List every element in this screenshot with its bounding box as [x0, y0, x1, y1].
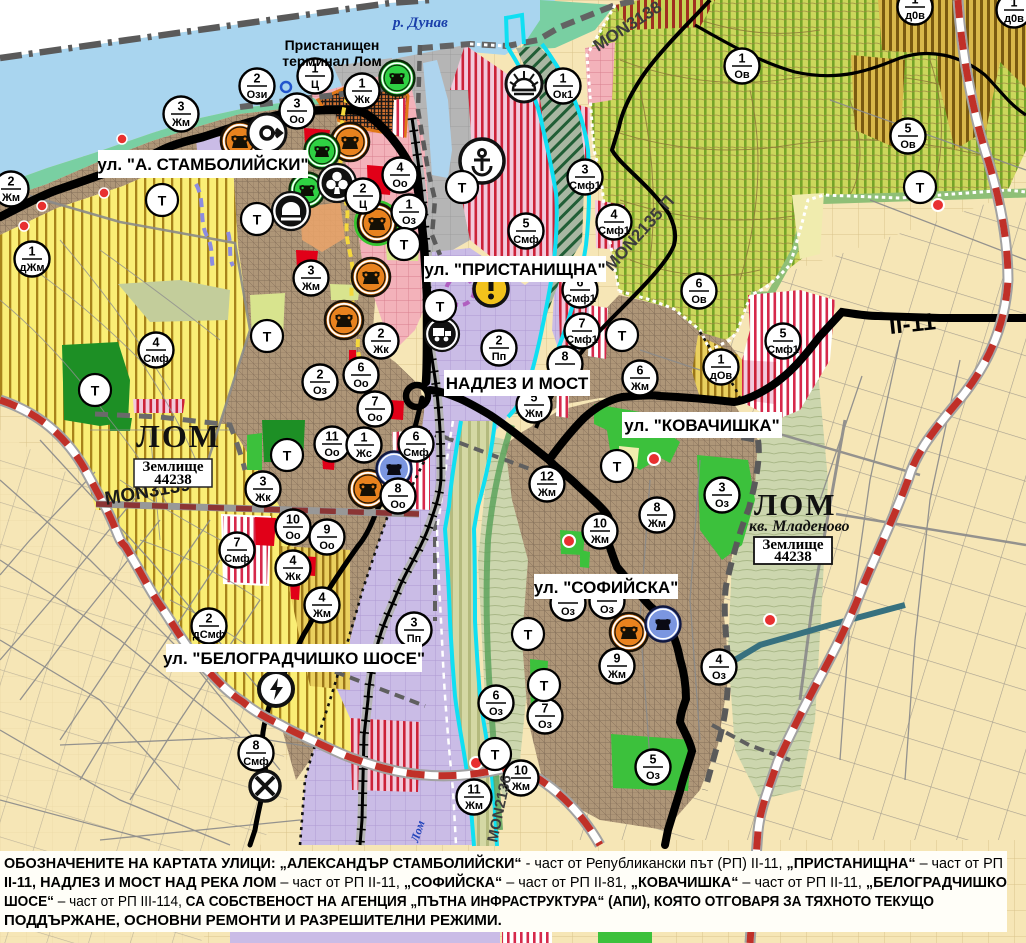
svg-text:8: 8: [395, 482, 402, 496]
svg-text:1: 1: [1011, 0, 1018, 10]
svg-text:Оз: Оз: [646, 770, 661, 782]
svg-text:1: 1: [912, 0, 919, 7]
svg-text:Оз: Оз: [715, 498, 730, 510]
svg-text:9: 9: [324, 523, 331, 537]
svg-text:ОБОЗНАЧЕНИТЕ НА КАРТАТА УЛИЦИ:: ОБОЗНАЧЕНИТЕ НА КАРТАТА УЛИЦИ: „АЛЕКСАНД…: [4, 854, 1003, 872]
svg-text:8: 8: [562, 350, 569, 364]
svg-text:2: 2: [254, 72, 261, 86]
svg-text:7: 7: [234, 536, 241, 550]
svg-text:8: 8: [654, 501, 661, 515]
svg-text:Смф1: Смф1: [566, 334, 598, 346]
svg-text:кв. Младеново: кв. Младеново: [749, 518, 850, 535]
svg-text:4: 4: [611, 208, 618, 222]
svg-text:1: 1: [560, 72, 567, 86]
svg-text:д0в: д0в: [905, 10, 925, 22]
svg-text:ЛОМ: ЛОМ: [136, 418, 221, 454]
svg-text:Оо: Оо: [319, 540, 335, 552]
svg-text:ул. "СОФИЙСКА": ул. "СОФИЙСКА": [534, 578, 679, 597]
svg-text:3: 3: [294, 97, 301, 111]
svg-text:д0в: д0в: [1004, 13, 1024, 25]
svg-text:Ок1: Ок1: [553, 89, 573, 101]
svg-text:Пп: Пп: [407, 633, 422, 645]
svg-text:8: 8: [253, 739, 260, 753]
svg-text:Ц: Ц: [359, 199, 367, 211]
svg-text:10: 10: [286, 513, 300, 527]
svg-text:Пристанищен: Пристанищен: [285, 37, 380, 53]
svg-text:1: 1: [406, 198, 413, 212]
svg-text:Жм: Жм: [630, 381, 649, 393]
svg-text:10: 10: [514, 764, 528, 778]
svg-text:Смф1: Смф1: [767, 344, 799, 356]
svg-text:Ц: Ц: [311, 79, 319, 91]
svg-text:Жм: Жм: [171, 117, 190, 129]
svg-text:Жк: Жк: [353, 94, 370, 106]
svg-text:Жм: Жм: [524, 408, 543, 420]
svg-text:Оз: Оз: [538, 719, 553, 731]
svg-text:Жм: Жм: [537, 487, 556, 499]
svg-text:10: 10: [593, 517, 607, 531]
svg-text:Жм: Жм: [590, 534, 609, 546]
svg-text:2: 2: [378, 327, 385, 341]
svg-text:ШОСЕ“ – част от РП III-114, СА: ШОСЕ“ – част от РП III-114, СА СОБСТВЕНО…: [4, 893, 934, 910]
svg-text:Оо: Оо: [353, 378, 369, 390]
svg-text:Оз: Оз: [561, 606, 576, 618]
svg-text:3: 3: [582, 163, 589, 177]
svg-text:6: 6: [637, 364, 644, 378]
svg-text:5: 5: [523, 217, 530, 231]
svg-text:7: 7: [579, 317, 586, 331]
svg-text:11: 11: [467, 783, 480, 797]
svg-text:4: 4: [397, 161, 404, 175]
svg-text:44238: 44238: [774, 549, 812, 565]
svg-text:Смф: Смф: [243, 756, 269, 768]
svg-text:7: 7: [542, 702, 549, 716]
svg-text:Оо: Оо: [324, 447, 340, 459]
svg-text:ПОДДЪРЖАНЕ, ОСНОВНИ РЕМОНТИ И: ПОДДЪРЖАНЕ, ОСНОВНИ РЕМОНТИ И РАЗРЕШИТЕЛ…: [4, 912, 502, 929]
svg-text:НАДЛЕЗ И МОСТ: НАДЛЕЗ И МОСТ: [446, 374, 589, 393]
svg-text:12: 12: [540, 470, 554, 484]
svg-text:Жм: Жм: [607, 669, 626, 681]
svg-text:Оо: Оо: [367, 412, 383, 424]
svg-text:Смф: Смф: [143, 353, 169, 365]
svg-text:Оз: Оз: [712, 670, 727, 682]
svg-text:II-11: II-11: [888, 308, 937, 340]
svg-text:Оз: Оз: [489, 706, 504, 718]
svg-text:3: 3: [719, 481, 726, 495]
svg-text:4: 4: [153, 336, 160, 350]
svg-text:Ози: Ози: [247, 89, 268, 101]
svg-text:1: 1: [361, 431, 368, 445]
svg-text:6: 6: [358, 361, 365, 375]
svg-text:3: 3: [178, 100, 185, 114]
svg-text:Ов: Ов: [734, 69, 750, 81]
svg-text:2: 2: [360, 182, 367, 196]
svg-text:44238: 44238: [154, 472, 192, 488]
svg-text:ЛОМ: ЛОМ: [754, 487, 836, 522]
svg-text:3: 3: [260, 475, 267, 489]
svg-text:3: 3: [308, 264, 315, 278]
svg-text:II-11, НАДЛЕЗ И МОСТ НАД РЕКА: II-11, НАДЛЕЗ И МОСТ НАД РЕКА ЛОМ – част…: [4, 873, 1007, 891]
svg-text:ул. "ПРИСТАНИЩНА": ул. "ПРИСТАНИЩНА": [424, 260, 605, 279]
svg-text:Пп: Пп: [492, 351, 507, 363]
svg-text:6: 6: [696, 277, 703, 291]
svg-text:11: 11: [325, 430, 338, 444]
svg-text:р. Дунав: р. Дунав: [391, 15, 448, 31]
svg-text:1: 1: [718, 353, 725, 367]
svg-text:дЖм: дЖм: [19, 262, 44, 274]
svg-text:1: 1: [29, 245, 36, 259]
svg-text:Оо: Оо: [390, 499, 406, 511]
svg-text:ул. "БЕЛОГРАДЧИШКО ШОСЕ": ул. "БЕЛОГРАДЧИШКО ШОСЕ": [163, 649, 425, 668]
svg-text:Жм: Жм: [312, 608, 331, 620]
svg-text:6: 6: [413, 430, 420, 444]
svg-text:Оо: Оо: [392, 178, 408, 190]
svg-text:Смф: Смф: [403, 447, 429, 459]
svg-text:2: 2: [206, 612, 213, 626]
svg-text:ул. "А. СТАМБОЛИЙСКИ": ул. "А. СТАМБОЛИЙСКИ": [97, 155, 308, 174]
svg-text:дОв: дОв: [710, 370, 733, 382]
svg-text:6: 6: [493, 689, 500, 703]
svg-text:4: 4: [716, 653, 723, 667]
svg-text:Смф1: Смф1: [569, 180, 601, 192]
svg-text:Оз: Оз: [313, 385, 328, 397]
svg-text:2: 2: [8, 175, 15, 189]
svg-text:4: 4: [290, 554, 297, 568]
svg-text:2: 2: [317, 368, 324, 382]
svg-text:Ов: Ов: [691, 294, 707, 306]
svg-text:Жм: Жм: [464, 800, 483, 812]
svg-text:ул. "КОВАЧИШКА": ул. "КОВАЧИШКА": [624, 416, 780, 435]
svg-text:1: 1: [359, 77, 366, 91]
svg-text:4: 4: [319, 591, 326, 605]
svg-text:Оз: Оз: [600, 604, 615, 616]
svg-text:5: 5: [650, 753, 657, 767]
svg-text:Смф: Смф: [513, 234, 539, 246]
svg-text:5: 5: [905, 122, 912, 136]
svg-text:1: 1: [739, 52, 746, 66]
svg-text:9: 9: [614, 652, 621, 666]
svg-text:5: 5: [780, 327, 787, 341]
svg-text:Оо: Оо: [289, 114, 305, 126]
svg-text:терминал Лом: терминал Лом: [282, 53, 382, 69]
svg-text:3: 3: [411, 616, 418, 630]
svg-text:Жм: Жм: [647, 518, 666, 530]
svg-text:Жк: Жк: [254, 492, 271, 504]
svg-text:Жм: Жм: [301, 281, 320, 293]
svg-text:дСмф: дСмф: [193, 629, 226, 641]
svg-text:Жм: Жм: [1, 192, 20, 204]
svg-text:Смф1: Смф1: [564, 293, 596, 305]
svg-text:2: 2: [496, 334, 503, 348]
svg-text:Жс: Жс: [355, 448, 372, 460]
svg-text:Ов: Ов: [900, 139, 916, 151]
svg-text:Смф: Смф: [224, 553, 250, 565]
svg-text:Жк: Жк: [372, 344, 389, 356]
svg-text:Жк: Жк: [284, 571, 301, 583]
svg-text:7: 7: [372, 395, 379, 409]
svg-text:Оо: Оо: [285, 530, 301, 542]
svg-text:Оз: Оз: [402, 215, 417, 227]
